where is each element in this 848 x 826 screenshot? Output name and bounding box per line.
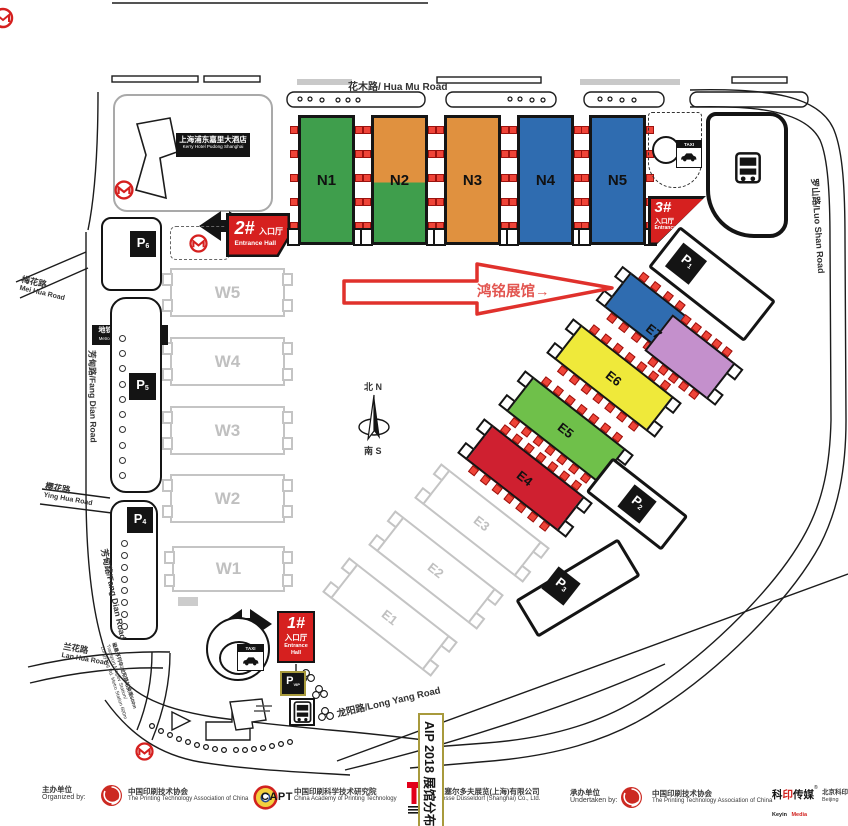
bus-icon: [734, 152, 762, 185]
car-icon: [680, 151, 698, 162]
metro-icon: [135, 742, 154, 761]
taxi-sign: TAXI: [237, 644, 264, 671]
hall-n4: N4: [517, 115, 574, 245]
hall-w2: W2: [170, 474, 285, 523]
organizer-2: 中国印刷科学技术研究院China Academy of Printing Tec…: [294, 787, 397, 804]
parking-p6: P6: [130, 231, 156, 257]
keyin-media-logo: 科印传媒® Keyin Media: [772, 786, 818, 820]
compass-south-label: 南 S: [364, 446, 382, 456]
hall-w3: W3: [170, 406, 285, 455]
organizer-3: 杜塞尔多夫展览(上海)有限公司Messe Düsseldorf (Shangha…: [437, 787, 540, 804]
hall-w5: W5: [170, 268, 285, 317]
hall-n2: N2: [371, 115, 428, 245]
parking-p5: P5: [129, 373, 156, 400]
parking-vip-frame: P VIP: [280, 671, 306, 696]
entrance-hall-1: 1# 入口厅 Entrance Hall: [277, 611, 315, 663]
car-icon: [242, 655, 260, 666]
hall-n5: N5: [589, 115, 646, 245]
metro-icon: [0, 9, 12, 27]
hall-w1: W1: [172, 546, 285, 592]
entrance-hall-2: 2# 入口厅 Entrance Hall: [226, 213, 290, 257]
hall-w4: W4: [170, 337, 285, 386]
ptac-seal-icon: [100, 784, 123, 807]
annotation-text: 鸿铭展馆→: [477, 280, 550, 301]
organizer-5: 北京科印 Beijing: [822, 789, 848, 804]
map-title-box: AIP 2018 展馆分布图: [418, 713, 444, 826]
compass-icon: [352, 393, 396, 445]
ptac-seal-icon: [620, 786, 643, 809]
road-label-fang-dian: 芳甸路/Fang Dian Road: [86, 350, 97, 445]
map-title: AIP 2018 展馆分布图: [421, 721, 440, 826]
capt-text: CAPT: [261, 791, 293, 803]
parking-p2: P2: [617, 484, 656, 523]
metro-icon: [114, 180, 134, 200]
parking-p1: P1: [665, 243, 707, 285]
bus-icon: [293, 701, 312, 724]
road-label-hua-mu: 花木路/ Hua Mu Road: [348, 82, 447, 94]
organizer-1: 中国印刷技术协会The Printing Technology Associat…: [128, 787, 248, 804]
parking-vip: P VIP: [282, 673, 304, 694]
undertaken-by-label: 承办单位Undertaken by:: [570, 788, 617, 806]
metro-icon: [189, 234, 208, 253]
taxi-sign: TAXI: [676, 140, 702, 168]
organized-by-label: 主办单位Organized by:: [42, 785, 86, 803]
hotel-label: 上海浦东嘉里大酒店 Kerry Hotel Pudong Shanghai: [176, 133, 250, 157]
parking-p4: P4: [127, 507, 153, 533]
hall-n1: N1: [298, 115, 355, 245]
hall-n3: N3: [444, 115, 501, 245]
parking-p5-area: P5: [110, 297, 162, 493]
bus-stop-frame: [289, 698, 315, 726]
venue-map: 花木路/ Hua Mu Road 上海浦东嘉里大酒店 Kerry Hotel P…: [0, 0, 848, 826]
organizer-4: 中国印刷技术协会The Printing Technology Associat…: [652, 789, 772, 806]
compass-north-label: 北 N: [364, 382, 382, 392]
